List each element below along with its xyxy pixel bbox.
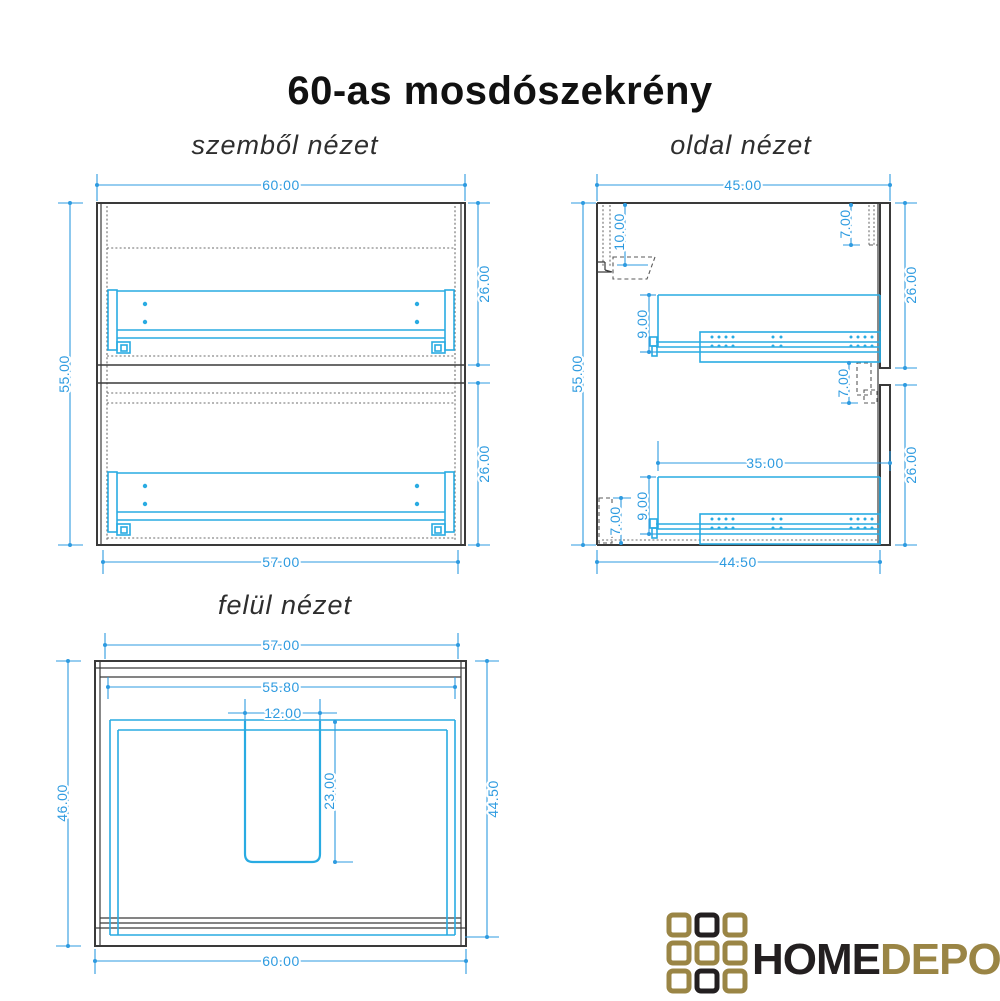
dim-top-cutout-depth-label: 23.00 [321,772,337,810]
dim-side-depth-bottom-label: 44.50 [719,554,757,570]
top-carcass [95,661,466,946]
front-drawer-slide-lower [107,472,455,538]
side-drawer-slide-upper [650,295,880,362]
dim-side-height-left-label: 55.00 [569,355,585,393]
dim-side-slide-upper-height: 9.00 [634,293,656,354]
side-view-drawing: 9.00 9.00 45.00 55.00 10.00 [569,174,919,574]
front-carcass [97,203,465,545]
dim-side-slide-length-label: 35.00 [746,455,784,471]
dim-front-width-bottom-label: 57.00 [262,554,300,570]
dim-side-front-gap: 7.00 [835,361,858,405]
dim-top-cutout-depth: 23.00 [321,720,353,864]
dim-front-width-top-label: 60.00 [262,177,300,193]
dim-side-top-back-inset: 7.00 [837,203,860,247]
front-view-drawing: 60.00 55.00 26.00 26.00 [56,174,492,574]
dim-top-depth-right-label: 44.50 [485,780,501,818]
dim-side-section-lower: 26.00 [895,383,919,547]
dim-side-slide-length: 35.00 [656,441,892,471]
dim-side-depth-top: 45.00 [595,174,892,201]
dim-front-width-top: 60.00 [95,174,467,201]
dim-top-width-inner: 55.80 [106,677,457,699]
dim-side-slide-lower-height: 9.00 [634,475,656,536]
dim-side-height-left: 55.00 [569,201,596,547]
dim-top-width-top: 57.00 [103,633,460,659]
dim-front-section-lower: 26.00 [468,381,492,547]
side-drawer-slide-lower [650,477,880,544]
dim-front-height-left-label: 55.00 [56,355,72,393]
top-view-drawing: 57.00 55.80 12.00 23.00 46.00 [54,633,501,974]
dim-side-bottom-back-inset: 7.00 [607,496,631,545]
dim-top-cutout-width-label: 12.00 [264,705,302,721]
dim-front-width-bottom: 57.00 [101,550,460,574]
dim-side-section-upper: 26.00 [895,201,919,370]
dim-top-depth-left-label: 46.00 [54,784,70,822]
dim-front-height-left: 55.00 [56,201,83,547]
dim-front-section-upper-label: 26.00 [476,265,492,303]
dim-side-slide-lower-height-label: 9.00 [634,491,650,520]
logo-text-depo: DEPO [880,935,1000,984]
dim-front-section-lower-label: 26.00 [476,445,492,483]
top-drawer-box [110,720,455,935]
front-drawer-slide-upper [107,290,455,356]
dim-side-front-gap-label: 7.00 [835,368,851,397]
dim-side-top-back-inset-label: 7.00 [837,209,853,238]
dim-top-cutout-width: 12.00 [228,699,337,722]
wall-bracket-outline [613,257,655,279]
dim-top-depth-left: 46.00 [54,659,81,948]
siphon-cutout [245,721,320,862]
technical-drawing: 60.00 55.00 26.00 26.00 [0,0,1000,1000]
dim-top-width-bottom-label: 60.00 [262,953,300,969]
dim-top-width-inner-label: 55.80 [262,679,300,695]
dim-side-section-upper-label: 26.00 [903,266,919,304]
dim-top-width-bottom: 60.00 [93,949,468,974]
dim-side-hang-rail-offset-label: 10.00 [611,213,627,251]
dim-top-depth-right: 44.50 [465,659,501,939]
dim-side-bottom-back-inset-label: 7.00 [607,506,623,535]
logo-text-home: HOME [752,935,880,984]
dim-top-width-top-label: 57.00 [262,637,300,653]
logo-grid-icon [666,912,750,996]
logo-wordmark: HOMEDEPO [752,938,1000,982]
dim-side-depth-top-label: 45.00 [724,177,762,193]
dim-side-section-lower-label: 26.00 [903,446,919,484]
homedepo-logo: HOMEDEPO [666,912,996,996]
dim-front-section-upper: 26.00 [468,201,492,367]
dim-side-slide-upper-height-label: 9.00 [634,309,650,338]
dim-side-depth-bottom: 44.50 [595,550,882,574]
